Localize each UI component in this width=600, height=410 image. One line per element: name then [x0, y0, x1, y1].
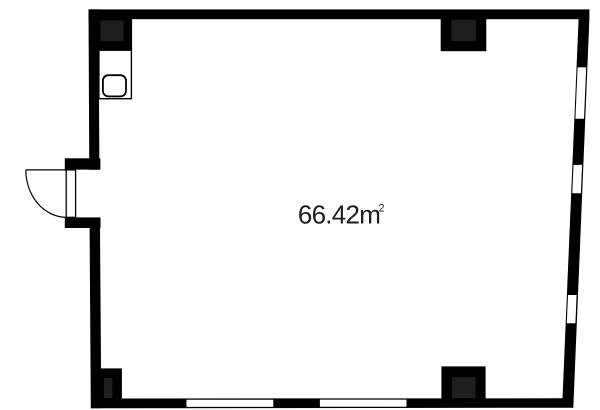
svg-text:66.42m2: 66.42m2 [298, 200, 385, 230]
